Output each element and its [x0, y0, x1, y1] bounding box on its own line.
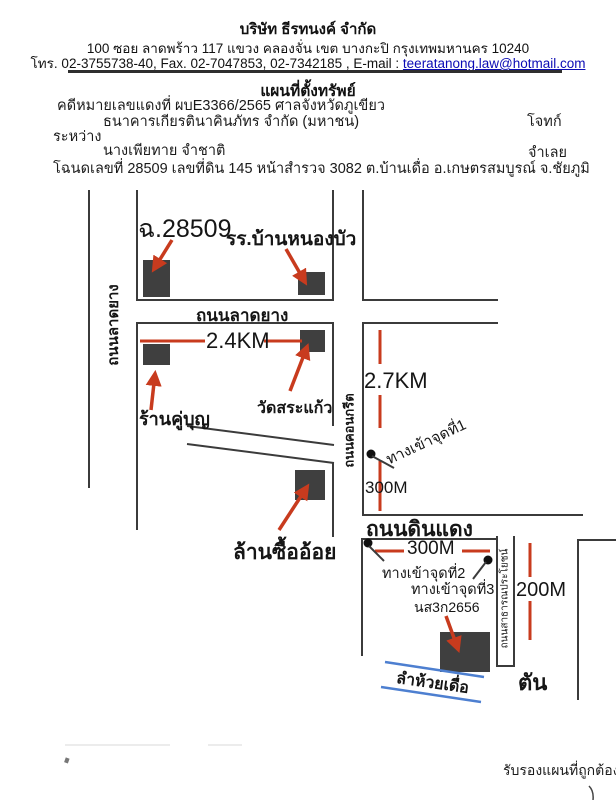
arrow-temple — [290, 347, 307, 391]
certify-text: รับรองแผนที่ถูกต้อง — [503, 760, 616, 782]
signature-paren-mark — [589, 786, 593, 800]
label-school: รร.บ้านหนองบัว — [226, 224, 356, 254]
plaintiff-role: โจทก์ — [527, 110, 562, 133]
label-road-latyang-vertical: ถนนลาดยาง — [101, 260, 125, 390]
label-distance-27km: 2.7KM — [364, 368, 428, 394]
label-sugarcane-yard: ล้านซื้ออ้อย — [233, 536, 336, 569]
between-label: ระหว่าง — [53, 125, 102, 148]
speck-artifact — [64, 757, 69, 763]
entrance2-pointer — [369, 546, 384, 561]
faint-line-a — [65, 744, 170, 746]
label-temple: วัดสระแก้ว — [257, 396, 332, 421]
phone-fax-text: โทร. 02-3755738-40, Fax. 02-7047853, 02-… — [31, 56, 403, 71]
entrance3-dot — [484, 556, 493, 565]
entrance1-dot — [367, 450, 376, 459]
label-distance-300m-a: 300M — [365, 478, 408, 498]
label-distance-300m-b: 300M — [407, 538, 455, 560]
square-target-property — [440, 632, 490, 672]
deed-line: โฉนดเลขที่ 28509 เลขที่ดิน 145 หน้าสำรวจ… — [53, 157, 590, 180]
arrow-sugarcane — [279, 487, 307, 530]
block-top-right — [363, 190, 498, 300]
arrow-target-property — [446, 616, 458, 649]
document-page: บริษัท ธีรทนงค์ จำกัด 100 ซอย ลาดพร้าว 1… — [0, 0, 616, 800]
plaintiff-name: ธนาคารเกียรตินาคินภัทร จำกัด (มหาชน) — [103, 110, 359, 133]
label-road-public: ถนนสาธารณประโยชน์ — [498, 541, 513, 657]
square-shop — [143, 344, 170, 365]
label-shop: ร้านคู่บุญ — [139, 404, 210, 433]
faint-line-b — [208, 744, 242, 746]
email-link[interactable]: teeratanong.law@hotmail.com — [403, 56, 586, 71]
label-entrance1: ทางเข้าจุดที่1 — [382, 413, 470, 471]
label-distance-24km: 2.4KM — [206, 328, 270, 354]
label-deed-ns3k: นส3ก2656 — [414, 597, 480, 619]
label-stream: ลำห้วยเดื่อ — [395, 666, 471, 701]
label-road-latyang-horizontal: ถนนลาดยาง — [196, 302, 288, 329]
block-bottom-right — [578, 540, 616, 700]
letterhead-divider — [68, 70, 562, 73]
entrance3-pointer — [473, 562, 486, 579]
square-temple — [300, 330, 325, 352]
label-road-concrete: ถนนคอนกรีต — [339, 381, 360, 481]
label-chanote-28509: ฉ.28509 — [138, 209, 232, 249]
label-dead-end: ตัน — [518, 665, 547, 700]
square-sugarcane-yard — [295, 470, 325, 500]
square-school — [298, 272, 325, 295]
square-chanote-28509 — [143, 260, 170, 297]
label-distance-200m: 200M — [516, 579, 566, 602]
